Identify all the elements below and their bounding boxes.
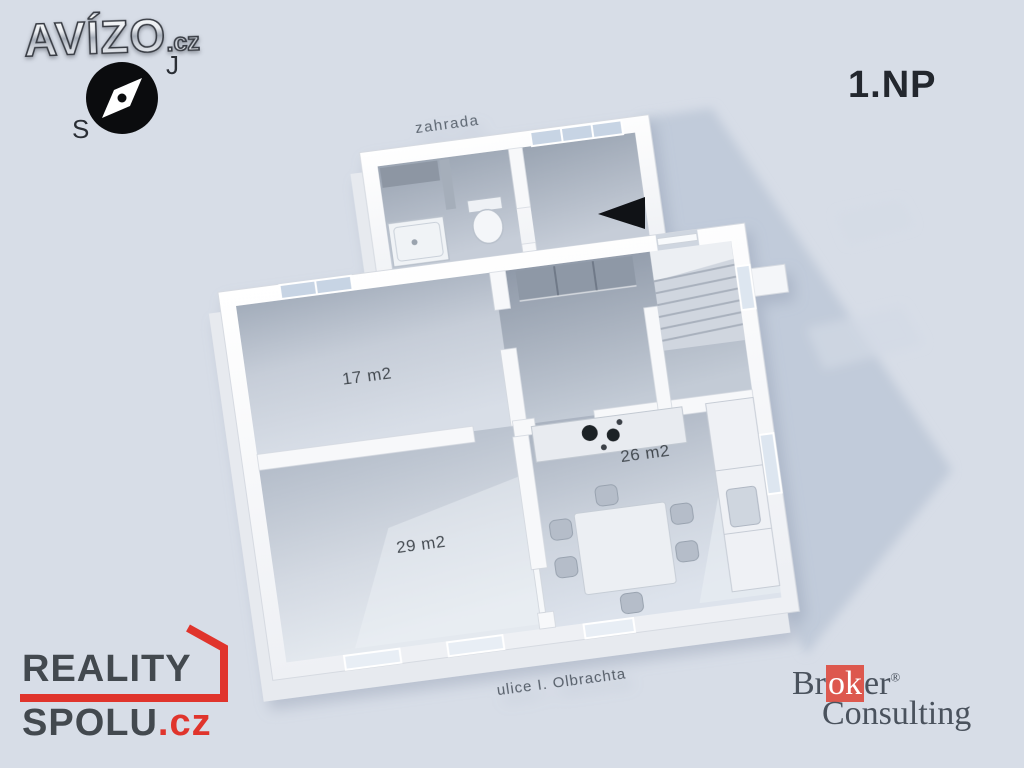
compass-label-s: S: [72, 114, 89, 144]
reality-spolu-line1: REALITY: [22, 648, 192, 691]
wall-annex-divider-b: [522, 242, 537, 252]
broker-line2: Consulting: [822, 696, 1022, 732]
reality-spolu-logo: REALITY SPOLU.cz: [14, 624, 274, 764]
wall-29-kitchen-b: [538, 611, 556, 629]
shower-tray: [388, 216, 450, 267]
broker-consulting-logo: Broker® Consulting: [792, 666, 1022, 731]
reality-spolu-word: SPOLU: [22, 702, 158, 744]
annex-room-floor: [522, 133, 649, 251]
compass-label-j: J: [166, 50, 179, 80]
reality-spolu-line2: SPOLU.cz: [22, 702, 212, 745]
dining-table: [574, 502, 677, 595]
registered-trademark-icon: ®: [890, 670, 900, 685]
broker-prefix: Br: [792, 665, 826, 702]
compass-hub: [118, 94, 127, 103]
staircase: [650, 241, 745, 351]
floor-level-label: 1.NP: [848, 64, 936, 107]
compass-icon: S J: [60, 48, 190, 148]
reality-spolu-tld: .cz: [158, 702, 212, 744]
kitchen-sink: [726, 486, 761, 528]
real-estate-floorplan-page: 17 m2 29 m2 26 m2 zahrada ulice I. Olbra…: [0, 0, 1024, 768]
entrance-porch-block: [751, 264, 789, 296]
